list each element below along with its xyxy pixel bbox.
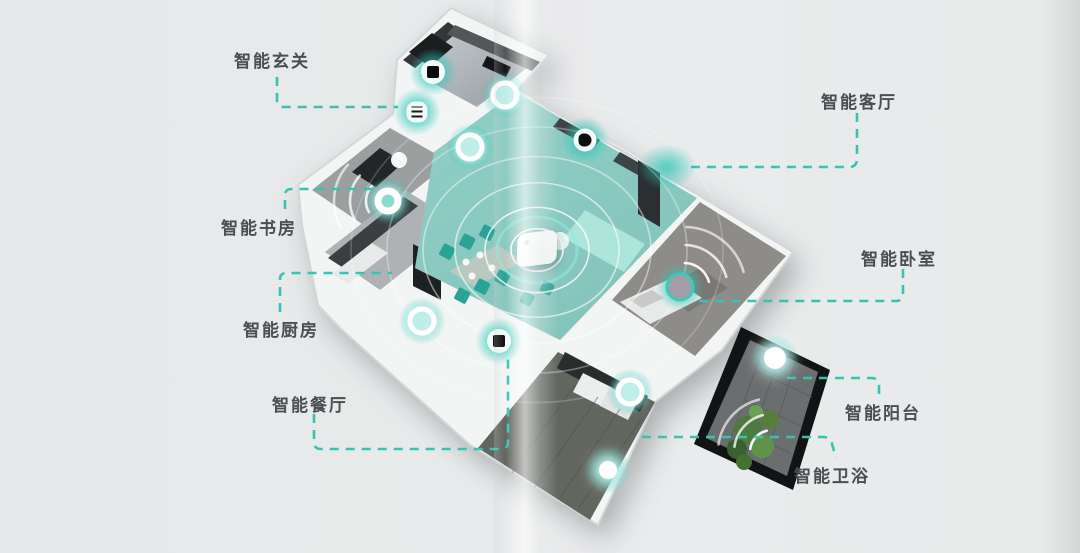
label-smart-dining: 智能餐厅 (272, 391, 348, 416)
label-smart-entry: 智能玄关 (234, 47, 310, 72)
label-smart-bathroom: 智能卫浴 (794, 462, 870, 487)
label-smart-living: 智能客厅 (821, 88, 897, 113)
device-entry-heater-icon (393, 88, 441, 136)
label-smart-kitchen: 智能厨房 (243, 316, 319, 341)
device-living-camera-icon (561, 116, 609, 164)
device-living-light-icon (446, 123, 494, 171)
device-bedroom-sensor-icon (656, 263, 704, 311)
brochure-page: 智能玄关 智能客厅 智能书房 智能厨房 智能餐厅 智能卧室 智能阳台 智能卫浴 (0, 0, 1080, 553)
label-smart-balcony: 智能阳台 (845, 399, 921, 424)
device-kitchen-sensor-icon (398, 297, 446, 345)
device-dining-wall-panel-icon (475, 317, 523, 365)
gateway-hub-device (517, 229, 557, 267)
floorplan-scene (0, 0, 1080, 553)
device-balcony-light-icon (751, 334, 799, 382)
callout-line-entry (277, 77, 398, 107)
label-smart-study: 智能书房 (221, 214, 297, 239)
device-study-air-purifier-icon (364, 177, 412, 225)
device-living-ac-glow (637, 144, 697, 190)
device-bathroom-sensor-icon (606, 368, 654, 416)
device-bathroom-light-icon (584, 446, 632, 494)
label-smart-bedroom: 智能卧室 (861, 245, 937, 270)
device-living-sensor-icon (481, 71, 529, 119)
callout-line-living (688, 113, 857, 167)
